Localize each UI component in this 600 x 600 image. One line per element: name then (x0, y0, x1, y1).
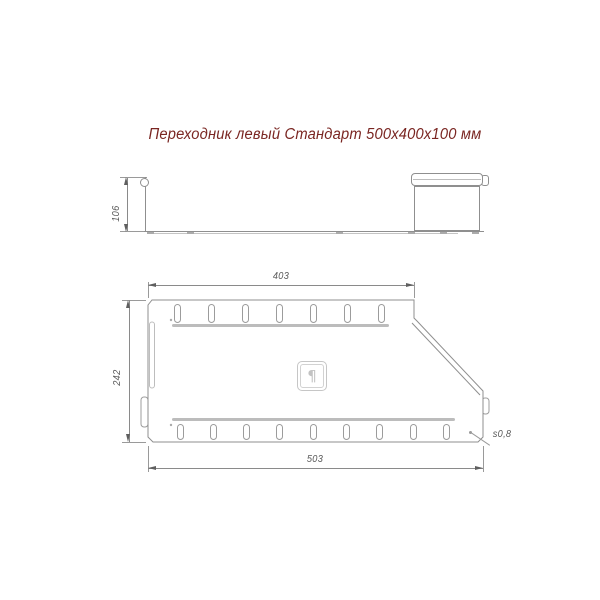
bottom-slot (177, 424, 184, 440)
drawing-title: Переходник левый Стандарт 500x400x100 мм (30, 126, 600, 144)
lid-inner-line (413, 179, 481, 180)
bottom-slot (376, 424, 383, 440)
dimension-label-left: 242 (112, 356, 123, 385)
top-slot (174, 304, 181, 323)
foot-tab (440, 232, 447, 234)
foot-tab (147, 232, 154, 234)
foot-tab (336, 232, 343, 234)
dimension-line-left (129, 300, 130, 442)
top-slot (378, 304, 385, 323)
bottom-slot (343, 424, 350, 440)
technical-drawing-canvas: Переходник левый Стандарт 500x400x100 мм… (0, 0, 600, 600)
bottom-slot (276, 424, 283, 440)
arrowhead-icon (475, 466, 483, 470)
rivet-dot (170, 319, 172, 321)
thickness-label: s0,8 (493, 429, 512, 440)
arrowhead-icon (148, 283, 156, 287)
arrowhead-icon (406, 283, 414, 287)
logo-glyph: ¶ (307, 369, 317, 384)
top-rib (172, 324, 389, 327)
top-slot (344, 304, 351, 323)
bottom-slot (410, 424, 417, 440)
arrowhead-icon (148, 466, 156, 470)
top-slot (276, 304, 283, 323)
extension-line (414, 282, 415, 298)
extension-line (122, 442, 146, 443)
arrowhead-icon (124, 224, 128, 232)
bottom-rib (172, 418, 455, 421)
arrowhead-icon (126, 300, 130, 308)
logo-inner-frame: ¶ (300, 364, 324, 388)
extension-line (483, 446, 484, 472)
dimension-label-top: 403 (263, 271, 300, 282)
foot-tab (408, 232, 415, 234)
arrowhead-icon (124, 177, 128, 185)
clip-detail-icon (140, 178, 149, 187)
top-slot (242, 304, 249, 323)
manufacturer-logo-icon: ¶ (297, 361, 327, 391)
dimension-line-bottom (148, 468, 483, 469)
bottom-slot (243, 424, 250, 440)
dimension-line-top (148, 285, 414, 286)
arrowhead-icon (126, 434, 130, 442)
dimension-label-height: 106 (111, 192, 122, 221)
bottom-slot (310, 424, 317, 440)
foot-tab (187, 232, 194, 234)
top-slot (208, 304, 215, 323)
dimension-label-bottom: 503 (297, 454, 334, 465)
left-side-tab (141, 397, 148, 427)
foot-tab (472, 232, 479, 234)
side-end-box (414, 186, 480, 231)
rivet-dot (170, 424, 172, 426)
top-slot (310, 304, 317, 323)
bottom-slot (443, 424, 450, 440)
bottom-slot (210, 424, 217, 440)
